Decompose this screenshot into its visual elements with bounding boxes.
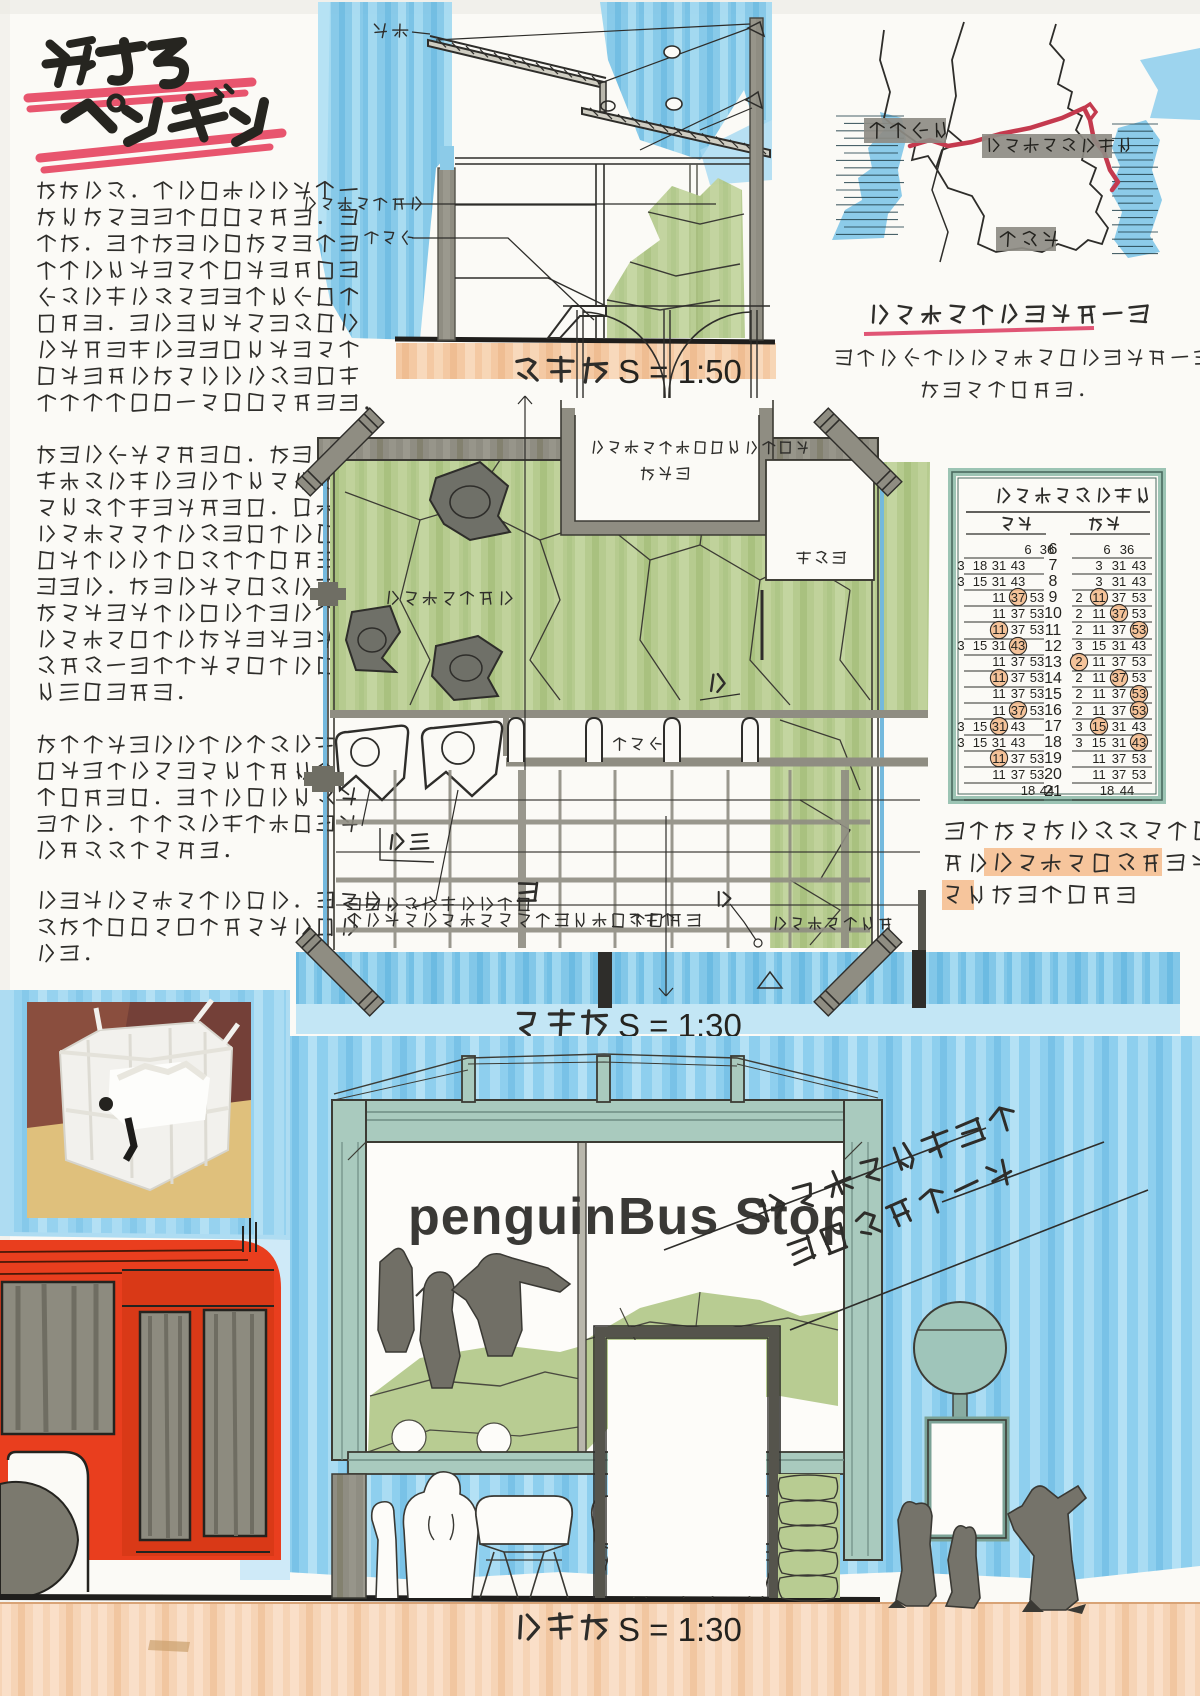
svg-text:18: 18 [1021,783,1035,798]
svg-text:43: 43 [1132,719,1146,734]
svg-text:2: 2 [1075,703,1082,718]
svg-text:53: 53 [1030,703,1044,718]
svg-text:11: 11 [1092,670,1106,685]
svg-text:31: 31 [1112,638,1126,653]
svg-text:53: 53 [1132,590,1146,605]
svg-text:31: 31 [1112,574,1126,589]
svg-text:15: 15 [973,719,987,734]
svg-text:43: 43 [1132,638,1146,653]
svg-text:8: 8 [1049,573,1058,590]
svg-text:37: 37 [1112,686,1126,701]
svg-text:11: 11 [1092,686,1106,701]
svg-text:15: 15 [973,638,987,653]
svg-text:6: 6 [1024,542,1031,557]
svg-text:3: 3 [1095,558,1102,573]
svg-text:37: 37 [1112,590,1126,605]
svg-text:3: 3 [957,638,964,653]
svg-text:43: 43 [1011,719,1025,734]
svg-text:3: 3 [957,574,964,589]
svg-text:2: 2 [1075,686,1082,701]
svg-text:3: 3 [1075,735,1082,750]
svg-text:37: 37 [1112,767,1126,782]
svg-text:18: 18 [973,558,987,573]
svg-text:3: 3 [957,735,964,750]
svg-text:53: 53 [1030,654,1044,669]
svg-text:37: 37 [1011,622,1025,637]
svg-text:53: 53 [1030,606,1044,621]
svg-text:11: 11 [992,686,1006,701]
svg-text:37: 37 [1112,670,1126,685]
svg-text:15: 15 [1092,735,1106,750]
svg-text:11: 11 [1092,622,1106,637]
svg-text:3: 3 [1095,574,1102,589]
svg-text:20: 20 [1044,766,1062,783]
svg-text:37: 37 [1011,606,1025,621]
svg-text:17: 17 [1044,718,1062,735]
svg-text:53: 53 [1030,670,1044,685]
svg-text:31: 31 [992,638,1006,653]
svg-text:14: 14 [1044,670,1062,687]
svg-text:53: 53 [1132,767,1146,782]
svg-text:31: 31 [992,735,1006,750]
svg-text:37: 37 [1011,670,1025,685]
svg-text:36: 36 [1120,542,1134,557]
svg-text:11: 11 [1092,767,1106,782]
svg-text:S = 1:50: S = 1:50 [618,353,742,390]
svg-text:11: 11 [992,590,1006,605]
svg-text:15: 15 [1044,686,1062,703]
svg-text:2: 2 [1075,654,1082,669]
svg-text:11: 11 [1092,751,1106,766]
svg-text:37: 37 [1112,654,1126,669]
svg-text:37: 37 [1011,654,1025,669]
svg-text:44: 44 [1040,783,1054,798]
svg-text:11: 11 [1092,654,1106,669]
svg-text:11: 11 [992,670,1006,685]
svg-text:3: 3 [1075,719,1082,734]
svg-text:31: 31 [992,558,1006,573]
svg-text:11: 11 [992,751,1006,766]
svg-text:S = 1:30: S = 1:30 [618,1611,742,1648]
svg-text:53: 53 [1132,703,1146,718]
svg-text:6: 6 [1103,542,1110,557]
svg-text:18: 18 [1100,783,1114,798]
svg-text:37: 37 [1011,767,1025,782]
svg-text:53: 53 [1030,686,1044,701]
svg-text:11: 11 [1045,622,1062,639]
svg-text:43: 43 [1011,558,1025,573]
svg-text:Bus Stop: Bus Stop [618,1188,854,1246]
svg-text:43: 43 [1011,638,1025,653]
svg-text:53: 53 [1132,686,1146,701]
svg-text:9: 9 [1049,589,1058,606]
svg-text:11: 11 [992,606,1006,621]
svg-text:11: 11 [992,767,1006,782]
svg-text:11: 11 [992,622,1006,637]
svg-text:53: 53 [1030,590,1044,605]
svg-text:37: 37 [1011,686,1025,701]
svg-text:43: 43 [1132,735,1146,750]
svg-text:11: 11 [992,703,1006,718]
svg-text:15: 15 [973,735,987,750]
svg-text:37: 37 [1011,751,1025,766]
svg-text:16: 16 [1044,702,1062,719]
svg-text:53: 53 [1132,622,1146,637]
svg-text:19: 19 [1044,750,1062,767]
svg-text:15: 15 [1092,638,1106,653]
svg-text:31: 31 [1112,558,1126,573]
svg-text:2: 2 [1075,622,1082,637]
svg-text:31: 31 [992,574,1006,589]
svg-text:43: 43 [1011,574,1025,589]
svg-text:10: 10 [1044,605,1062,622]
svg-text:18: 18 [1044,734,1062,751]
svg-text:11: 11 [1092,590,1106,605]
svg-text:53: 53 [1132,606,1146,621]
svg-text:7: 7 [1049,557,1058,574]
svg-text:11: 11 [1092,703,1106,718]
svg-text:3: 3 [1075,638,1082,653]
svg-text:11: 11 [992,654,1006,669]
svg-text:2: 2 [1075,606,1082,621]
svg-text:37: 37 [1011,590,1025,605]
svg-text:11: 11 [1092,606,1106,621]
svg-text:37: 37 [1112,606,1126,621]
svg-text:43: 43 [1132,558,1146,573]
svg-text:37: 37 [1112,703,1126,718]
svg-text:53: 53 [1030,622,1044,637]
svg-text:53: 53 [1132,670,1146,685]
svg-text:2: 2 [1075,670,1082,685]
svg-text:53: 53 [1030,751,1044,766]
svg-text:3: 3 [957,558,964,573]
svg-text:53: 53 [1132,751,1146,766]
svg-text:15: 15 [1092,719,1106,734]
svg-text:penguin: penguin [408,1188,617,1246]
svg-text:53: 53 [1132,654,1146,669]
svg-text:37: 37 [1112,751,1126,766]
svg-text:53: 53 [1030,767,1044,782]
svg-text:13: 13 [1044,654,1062,671]
svg-text:43: 43 [1011,735,1025,750]
svg-text:36: 36 [1040,542,1054,557]
svg-text:2: 2 [1075,590,1082,605]
svg-text:15: 15 [973,574,987,589]
svg-text:44: 44 [1120,783,1134,798]
svg-text:12: 12 [1044,638,1062,655]
svg-text:43: 43 [1132,574,1146,589]
svg-text:31: 31 [1112,735,1126,750]
svg-text:31: 31 [992,719,1006,734]
svg-text:31: 31 [1112,719,1126,734]
svg-text:37: 37 [1011,703,1025,718]
svg-text:3: 3 [957,719,964,734]
svg-text:37: 37 [1112,622,1126,637]
